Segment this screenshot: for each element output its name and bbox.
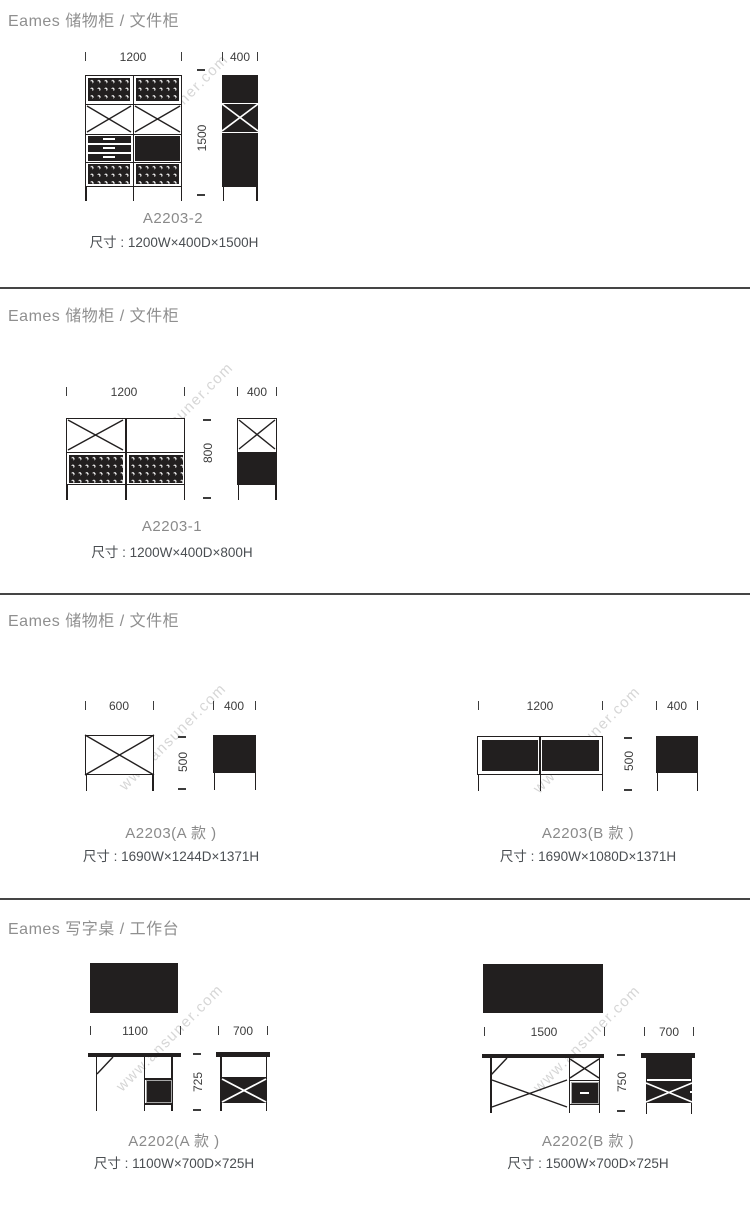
dim-depth-label: 400: [247, 385, 267, 399]
size-label: 尺寸 : 1200W×400D×800H: [91, 541, 252, 561]
x-brace: [570, 1059, 599, 1078]
dim-tick: [178, 788, 186, 790]
leg: [540, 775, 542, 791]
dim-width-label: 1100: [122, 1024, 148, 1038]
section-title: Eames 储物柜 / 文件柜: [8, 302, 179, 326]
cross-brace: [492, 1080, 567, 1107]
dim-tick: [153, 701, 154, 710]
drawer-handle: [103, 147, 115, 149]
dim-depth-label: 400: [224, 699, 244, 713]
frame-divider: [85, 104, 182, 106]
door-panel: [542, 740, 599, 771]
dim-tick: [656, 701, 657, 710]
dim-tick: [203, 497, 211, 499]
dim-tick: [181, 52, 182, 61]
drawer-handle: [690, 1091, 693, 1093]
model-label: A2203(A 款 ): [125, 822, 216, 843]
dim-tick: [644, 1027, 645, 1036]
leg: [66, 485, 68, 500]
dim-width-label: 1200: [527, 699, 554, 713]
dim-tick: [213, 701, 214, 710]
frame-divider: [66, 452, 185, 454]
perforated-panel: [136, 164, 179, 184]
frame-divider: [133, 75, 135, 187]
dim-tick: [478, 701, 479, 710]
dim-tick: [184, 387, 185, 396]
leg: [184, 485, 186, 500]
model-label: A2203-1: [142, 518, 202, 535]
dim-tick: [178, 736, 186, 738]
model-label: A2202(A 款 ): [128, 1130, 219, 1151]
section-title: Eames 储物柜 / 文件柜: [8, 607, 179, 631]
dim-tick: [617, 1054, 625, 1056]
perforated-panel: [88, 78, 130, 101]
x-brace: [222, 1079, 266, 1102]
top-view: [90, 963, 178, 1013]
leg-brace: [491, 1058, 507, 1075]
perforated-panel: [129, 455, 183, 483]
leg: [602, 775, 604, 791]
leg: [255, 773, 257, 790]
catalog-page: Eames 储物柜 / 文件柜 www.ansuner.com 1200 400: [0, 0, 750, 1212]
leg: [214, 773, 216, 790]
perforated-panel: [69, 455, 124, 483]
desktop: [216, 1052, 270, 1057]
dim-tick: [203, 419, 211, 421]
drawer: [571, 1082, 599, 1104]
drawer: [88, 136, 132, 144]
dim-height-label: 1500: [195, 125, 209, 152]
side-body: [238, 452, 276, 484]
leg: [275, 485, 277, 500]
dim-tick: [697, 701, 698, 710]
drawer: [88, 154, 132, 162]
size-label: 尺寸 : 1200W×400D×1500H: [90, 231, 259, 251]
section-title: Eames 写字桌 / 工作台: [8, 915, 179, 939]
dim-height-label: 725: [191, 1072, 205, 1092]
frame-divider: [539, 737, 541, 774]
dim-tick: [693, 1027, 694, 1036]
drawer-handle: [103, 156, 115, 158]
dim-tick: [193, 1109, 201, 1111]
x-brace: [239, 420, 275, 449]
drawer-handle: [103, 138, 115, 140]
dim-tick: [222, 52, 223, 61]
side-view: [656, 736, 698, 773]
leg: [657, 773, 659, 791]
leg: [266, 1057, 268, 1112]
door-panel: [482, 740, 538, 771]
perforated-panel: [88, 164, 130, 184]
leg: [85, 187, 87, 201]
x-brace-panel: [222, 103, 258, 133]
dim-tick: [257, 52, 258, 61]
leg: [478, 775, 480, 791]
dim-height-label: 500: [622, 751, 636, 771]
side-view: [213, 735, 256, 773]
leg: [133, 187, 135, 201]
perforated-panel: [136, 78, 179, 101]
dim-tick: [237, 387, 238, 396]
model-label: A2202(B 款 ): [542, 1130, 634, 1151]
dim-tick: [90, 1026, 91, 1035]
x-brace: [135, 106, 180, 132]
dim-tick: [276, 387, 277, 396]
x-brace: [87, 106, 131, 132]
model-label: A2203(B 款 ): [542, 822, 634, 843]
x-brace: [68, 420, 123, 450]
side-cabinet: [646, 1058, 692, 1080]
dim-height-label: 800: [201, 443, 215, 463]
x-brace: [85, 735, 154, 775]
section-4: Eames 写字桌 / 工作台 www.ansuner.com www.ansu…: [0, 899, 750, 1212]
dim-tick: [604, 1027, 605, 1036]
door-panel: [135, 136, 180, 161]
dim-tick: [180, 1026, 181, 1035]
size-label: 尺寸 : 1690W×1080D×1371H: [500, 845, 676, 865]
dim-depth-label: 700: [233, 1024, 253, 1038]
drawer: [146, 1080, 172, 1103]
drawer: [88, 145, 132, 153]
section-3: Eames 储物柜 / 文件柜 www.ansuner.com www.ansu…: [0, 594, 750, 899]
dim-tick: [617, 1110, 625, 1112]
size-label: 尺寸 : 1500W×700D×725H: [507, 1152, 668, 1172]
dim-tick: [193, 1053, 201, 1055]
dim-width-label: 1200: [111, 385, 138, 399]
dim-depth-label: 400: [230, 50, 250, 64]
model-label: A2203-2: [143, 210, 203, 227]
dim-tick: [66, 387, 67, 396]
dim-depth-label: 400: [667, 699, 687, 713]
dim-width-label: 600: [109, 699, 129, 713]
frame-divider: [85, 162, 182, 164]
leg: [238, 485, 240, 500]
leg: [152, 775, 154, 791]
x-brace: [646, 1083, 692, 1102]
drawer-handle: [580, 1092, 589, 1094]
dim-tick: [197, 69, 205, 71]
top-view: [483, 964, 603, 1013]
leg: [86, 775, 88, 791]
leg-brace: [97, 1057, 113, 1074]
dim-depth-label: 700: [659, 1025, 679, 1039]
dim-tick: [602, 701, 603, 710]
pedestal-rail: [144, 1103, 173, 1105]
dim-tick: [624, 789, 632, 791]
leg: [181, 187, 183, 201]
size-label: 尺寸 : 1100W×700D×725H: [94, 1152, 254, 1172]
dim-width-label: 1200: [120, 50, 147, 64]
leg: [697, 773, 699, 791]
section-1: Eames 储物柜 / 文件柜 www.ansuner.com 1200 400: [0, 0, 750, 288]
pedestal-rail: [569, 1104, 601, 1106]
dim-tick: [218, 1026, 219, 1035]
dim-tick: [197, 194, 205, 196]
dim-height-label: 500: [176, 752, 190, 772]
dim-tick: [484, 1027, 485, 1036]
leg: [125, 485, 127, 500]
dim-width-label: 1500: [531, 1025, 558, 1039]
dim-tick: [255, 701, 256, 710]
dim-tick: [85, 52, 86, 61]
dim-height-label: 750: [615, 1072, 629, 1092]
dim-tick: [267, 1026, 268, 1035]
dim-tick: [624, 737, 632, 739]
section-2: Eames 储物柜 / 文件柜 www.ansuner.com 1200 400…: [0, 288, 750, 594]
dim-tick: [85, 701, 86, 710]
section-title: Eames 储物柜 / 文件柜: [8, 7, 179, 31]
leg: [256, 187, 258, 201]
size-label: 尺寸 : 1690W×1244D×1371H: [83, 845, 259, 865]
leg: [223, 187, 225, 201]
